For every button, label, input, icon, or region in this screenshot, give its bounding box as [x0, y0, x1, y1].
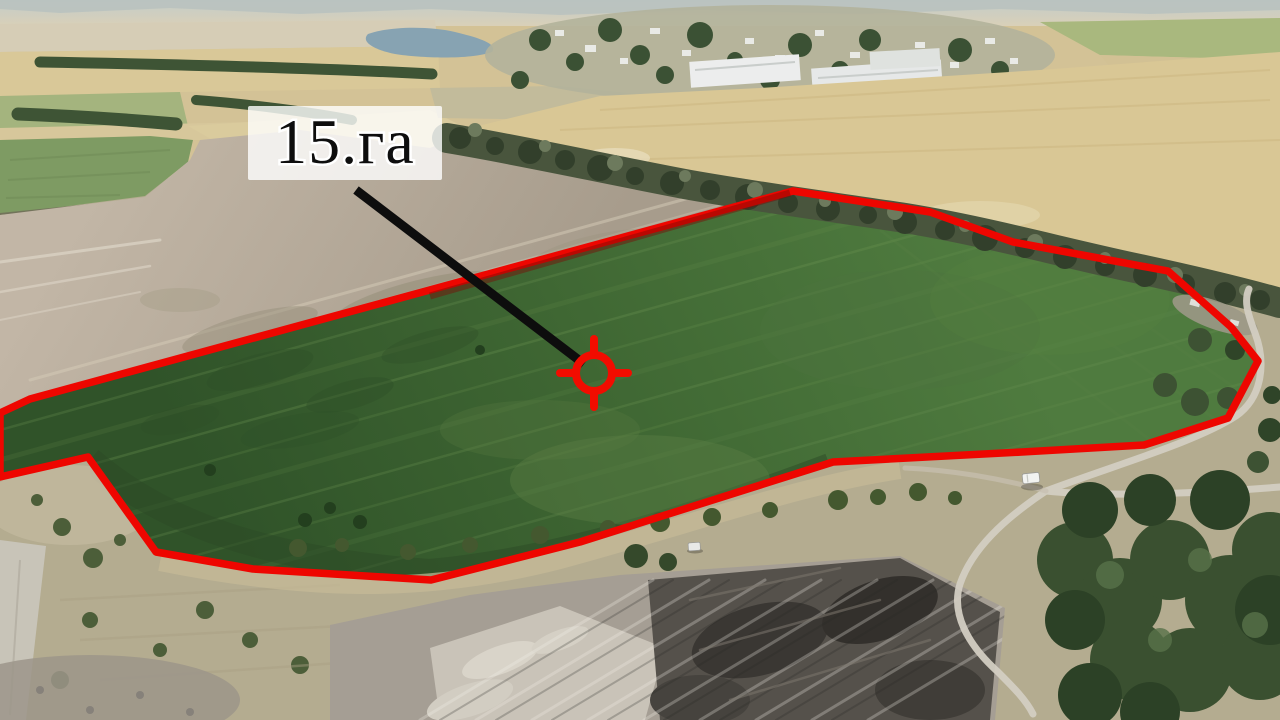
screenshot-stage: 15.га [0, 0, 1280, 720]
area-label-box: 15.га [248, 106, 442, 180]
aerial-photo: 15.га [0, 0, 1280, 720]
trees-bottom-right [1037, 470, 1280, 720]
area-label: 15.га [275, 106, 415, 177]
